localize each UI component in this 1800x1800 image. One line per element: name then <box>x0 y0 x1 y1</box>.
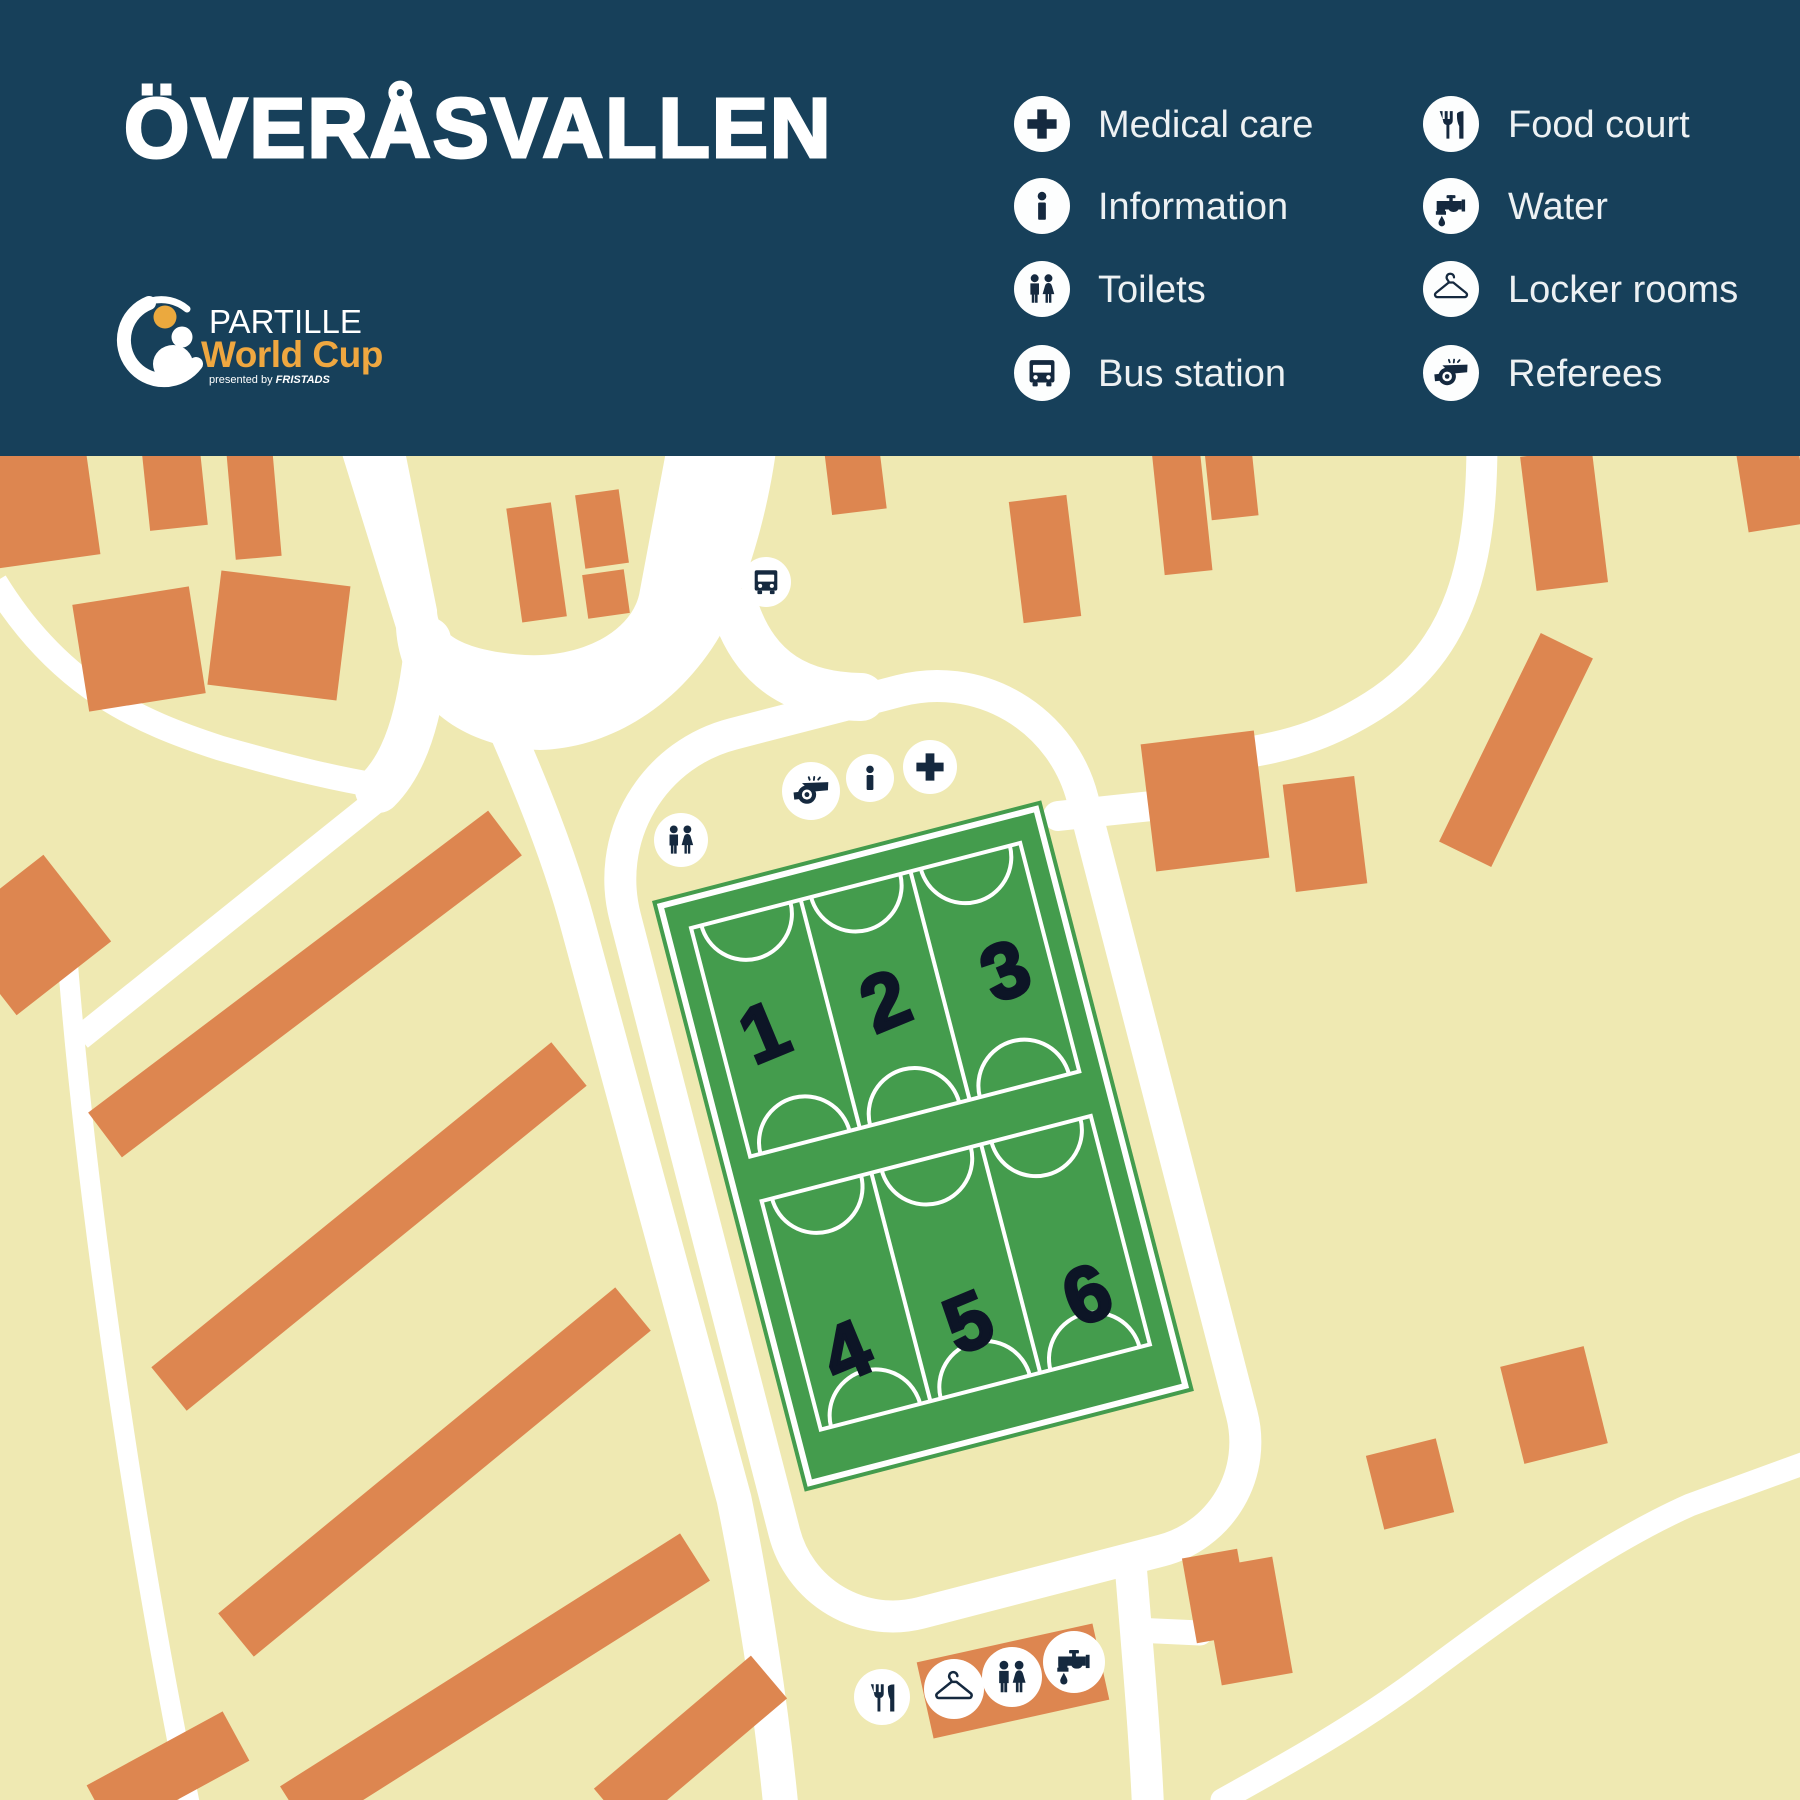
svg-text:Medical care: Medical care <box>1098 104 1313 146</box>
svg-text:World Cup: World Cup <box>201 334 383 375</box>
svg-text:Referees: Referees <box>1508 353 1662 395</box>
svg-text:presented by FRISTADS: presented by FRISTADS <box>209 374 331 386</box>
svg-text:Information: Information <box>1098 186 1288 228</box>
svg-text:Toilets: Toilets <box>1098 269 1206 311</box>
svg-text:ÖVERÅSVALLEN: ÖVERÅSVALLEN <box>124 81 833 175</box>
svg-text:Bus station: Bus station <box>1098 353 1286 395</box>
svg-text:Water: Water <box>1508 186 1608 228</box>
svg-text:Food court: Food court <box>1508 104 1690 146</box>
svg-text:Locker rooms: Locker rooms <box>1508 269 1738 311</box>
